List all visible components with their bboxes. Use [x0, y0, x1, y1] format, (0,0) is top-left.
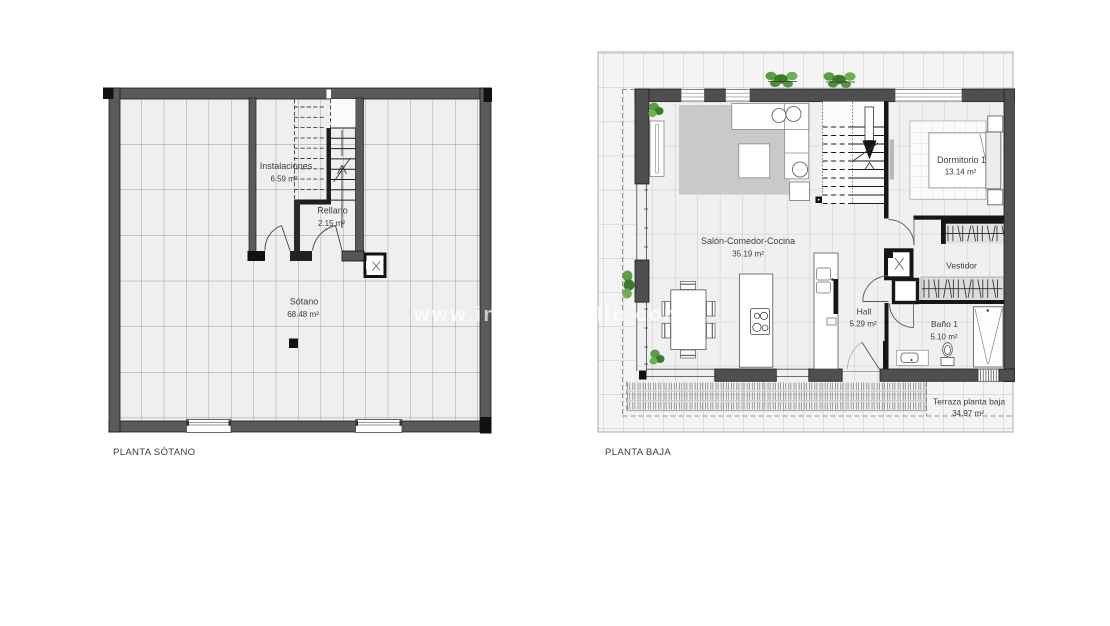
svg-text:68.48 m²: 68.48 m²: [287, 310, 319, 319]
svg-text:2.15 m²: 2.15 m²: [318, 219, 345, 228]
svg-text:34.97 m²: 34.97 m²: [952, 409, 984, 418]
svg-text:Dormitorio 1: Dormitorio 1: [937, 155, 986, 165]
svg-text:PLANTA SÓTANO: PLANTA SÓTANO: [113, 447, 195, 458]
svg-text:6.59 m²: 6.59 m²: [270, 175, 297, 184]
svg-text:PLANTA BAJA: PLANTA BAJA: [605, 447, 671, 458]
svg-text:5.29 m²: 5.29 m²: [849, 320, 876, 329]
svg-text:5.10 m²: 5.10 m²: [930, 333, 957, 342]
svg-text:13.14 m²: 13.14 m²: [945, 168, 977, 177]
svg-text:Hall: Hall: [857, 307, 872, 317]
svg-text:Salón-Comedor-Cocina: Salón-Comedor-Cocina: [701, 236, 795, 246]
svg-text:Vestidor: Vestidor: [946, 261, 977, 271]
svg-text:Terraza planta baja: Terraza planta baja: [933, 397, 1006, 407]
svg-text:Baño 1: Baño 1: [931, 319, 958, 329]
svg-text:Rellano: Rellano: [317, 206, 348, 216]
svg-text:35.19 m²: 35.19 m²: [732, 250, 764, 259]
svg-text:Sótano: Sótano: [290, 297, 319, 307]
svg-text:Instalaciones: Instalaciones: [260, 161, 313, 171]
